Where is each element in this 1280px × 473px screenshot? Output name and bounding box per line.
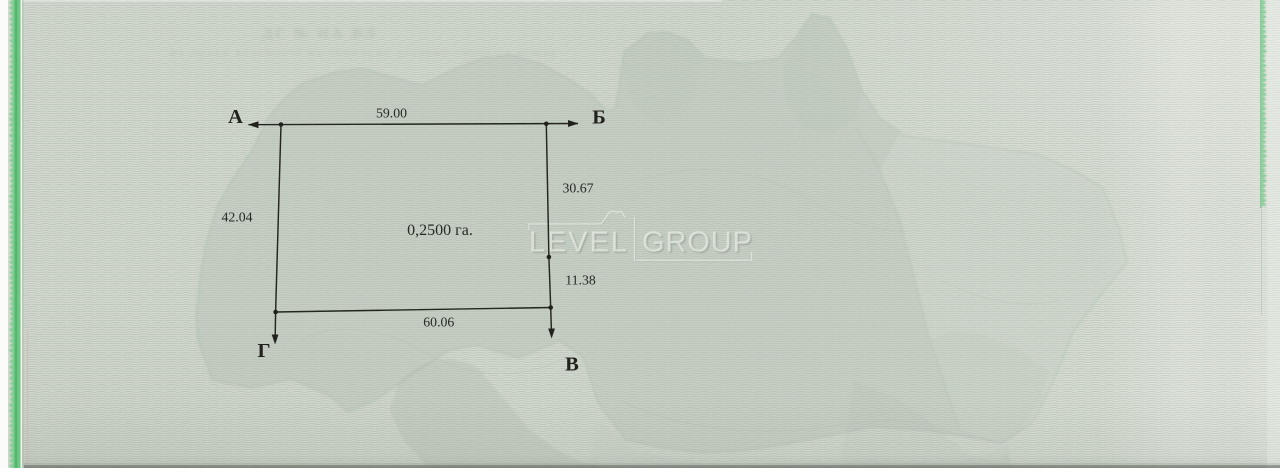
svg-text:11.38: 11.38 — [565, 273, 596, 288]
svg-text:LEVEL: LEVEL — [529, 227, 629, 259]
svg-text:на право власності на земельну: на право власності на земельну ділянку с… — [170, 47, 558, 59]
svg-text:ДГ № НА ВЛ: ДГ № НА ВЛ — [262, 26, 378, 42]
svg-text:В: В — [565, 354, 579, 376]
svg-text:GROUP: GROUP — [642, 227, 753, 259]
svg-text:60.06: 60.06 — [423, 315, 454, 330]
svg-text:Б: Б — [592, 107, 606, 129]
svg-text:30.67: 30.67 — [562, 181, 593, 196]
svg-text:Г: Г — [257, 340, 270, 362]
svg-text:42.04: 42.04 — [221, 210, 252, 225]
svg-text:0,2500 га.: 0,2500 га. — [407, 222, 473, 239]
svg-text:59.00: 59.00 — [376, 106, 407, 121]
svg-text:А: А — [228, 106, 243, 128]
